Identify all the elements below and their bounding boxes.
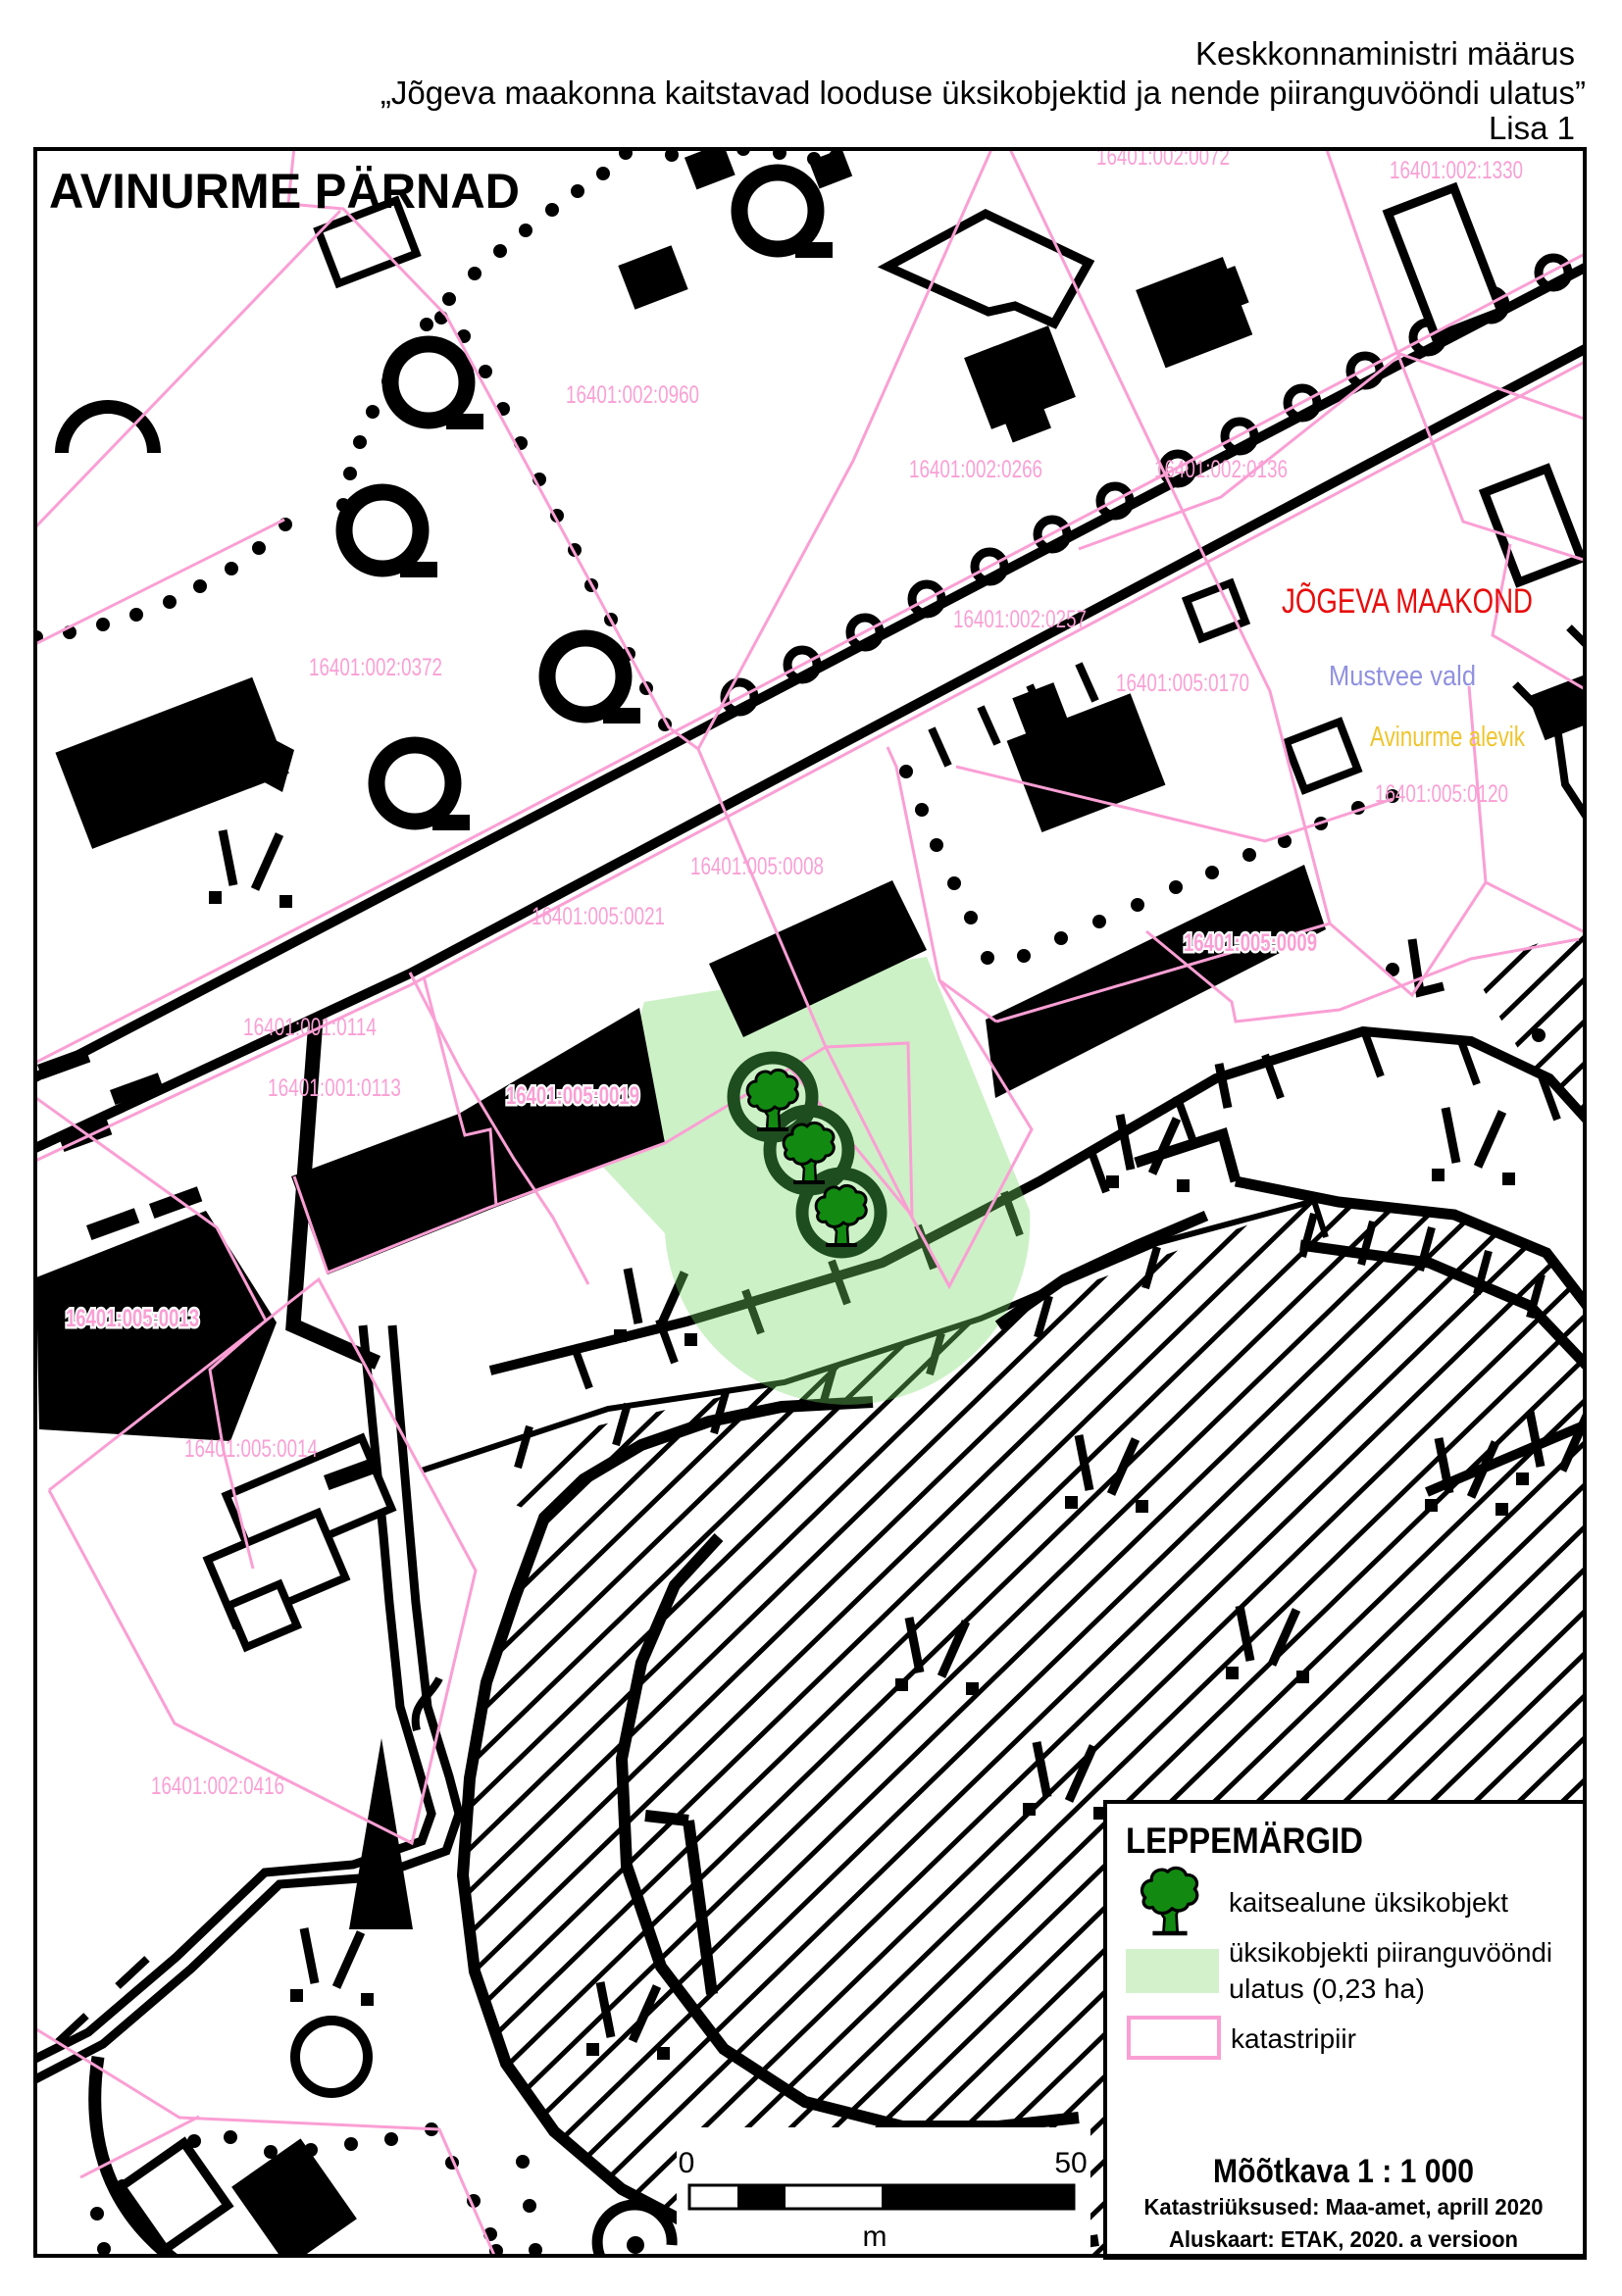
- svg-text:Avinurme alevik: Avinurme alevik: [1370, 722, 1525, 753]
- svg-text:16401:002:0266: 16401:002:0266: [909, 456, 1042, 483]
- svg-text:16401:002:0372: 16401:002:0372: [309, 654, 442, 681]
- svg-text:üksikobjekti piiranguvööndi: üksikobjekti piiranguvööndi: [1229, 1937, 1552, 1968]
- svg-text:16401:002:0416: 16401:002:0416: [151, 1772, 284, 1800]
- svg-text:16401:005:0008: 16401:005:0008: [690, 853, 824, 880]
- svg-text:Mustvee vald: Mustvee vald: [1329, 661, 1476, 692]
- svg-text:0: 0: [679, 2147, 695, 2179]
- svg-text:16401:002:1330: 16401:002:1330: [1390, 157, 1523, 184]
- svg-text:AVINURME PÄRNAD: AVINURME PÄRNAD: [49, 164, 520, 219]
- svg-text:16401:005:0120: 16401:005:0120: [1375, 780, 1508, 808]
- svg-text:JÕGEVA MAAKOND: JÕGEVA MAAKOND: [1282, 581, 1533, 621]
- svg-text:Aluskaart: ETAK, 2020. a versi: Aluskaart: ETAK, 2020. a versioon: [1169, 2226, 1518, 2252]
- svg-text:16401:005:0170: 16401:005:0170: [1116, 670, 1249, 697]
- svg-text:16401:002:0136: 16401:002:0136: [1154, 456, 1288, 483]
- svg-text:16401:002:0257: 16401:002:0257: [953, 606, 1087, 633]
- svg-text:ulatus (0,23 ha): ulatus (0,23 ha): [1229, 1973, 1425, 2004]
- svg-text:16401:002:0960: 16401:002:0960: [566, 381, 699, 409]
- svg-text:16401:005:0021: 16401:005:0021: [532, 903, 665, 930]
- svg-text:16401:001:0114: 16401:001:0114: [243, 1014, 377, 1041]
- svg-text:Keskkonnaministri määrus: Keskkonnaministri määrus: [1195, 35, 1575, 72]
- svg-text:LEPPEMÄRGID: LEPPEMÄRGID: [1126, 1821, 1363, 1861]
- svg-text:Mõõtkava 1 : 1 000: Mõõtkava 1 : 1 000: [1213, 2153, 1474, 2190]
- svg-text:kaitsealune üksikobjekt: kaitsealune üksikobjekt: [1229, 1887, 1508, 1918]
- svg-text:katastripiir: katastripiir: [1231, 2023, 1356, 2054]
- svg-text:16401:005:0019: 16401:005:0019: [506, 1082, 639, 1110]
- svg-text:Lisa 1: Lisa 1: [1489, 110, 1575, 146]
- svg-text:„Jõgeva maakonna kaitstavad lo: „Jõgeva maakonna kaitstavad looduse üksi…: [380, 75, 1586, 111]
- svg-text:16401:005:0014: 16401:005:0014: [184, 1435, 318, 1463]
- svg-text:m: m: [863, 2221, 887, 2253]
- svg-text:16401:001:0113: 16401:001:0113: [268, 1074, 401, 1102]
- svg-text:Katastriüksused: Maa-amet, apr: Katastriüksused: Maa-amet, aprill 2020: [1144, 2194, 1544, 2220]
- svg-text:16401:005:0009: 16401:005:0009: [1184, 929, 1317, 957]
- svg-text:50: 50: [1054, 2147, 1087, 2179]
- svg-text:16401:005:0013: 16401:005:0013: [66, 1305, 199, 1332]
